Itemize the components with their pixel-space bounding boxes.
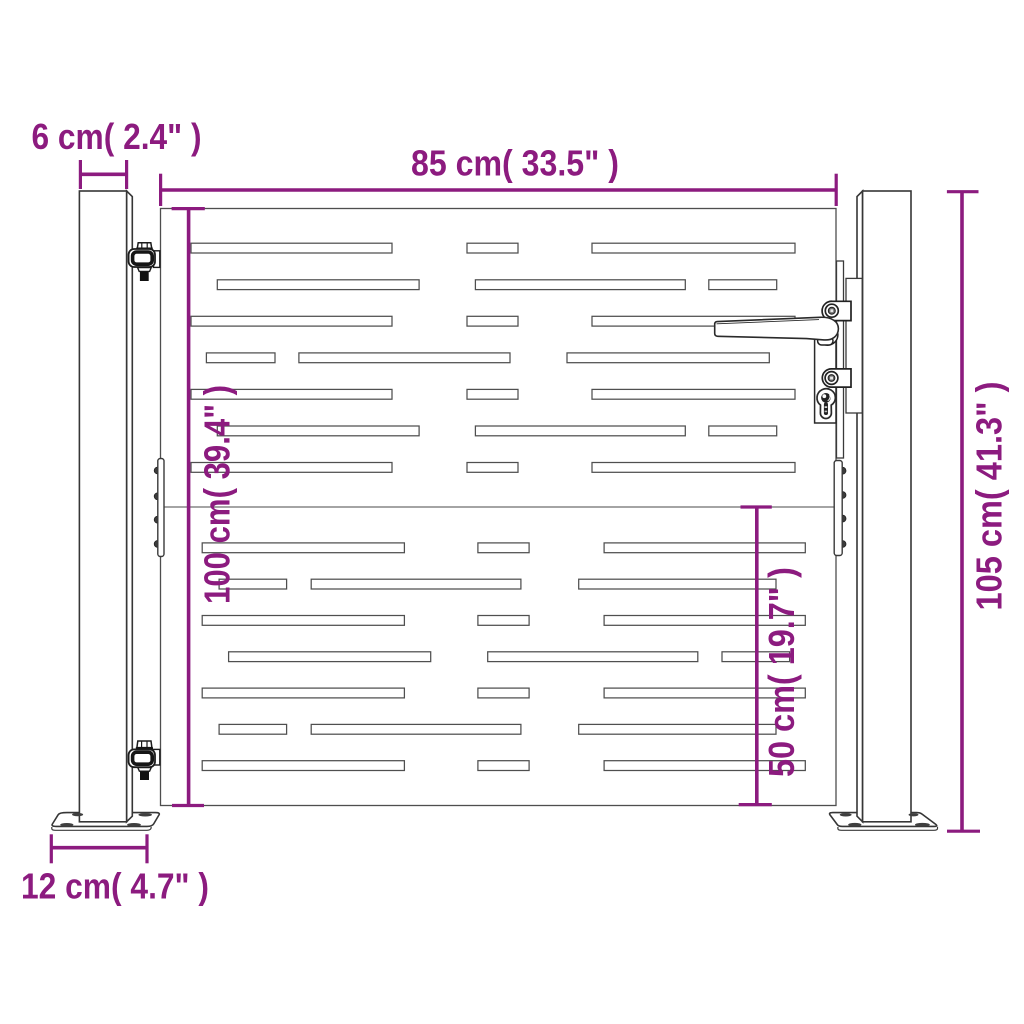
svg-text:100 cm( 39.4" ): 100 cm( 39.4" ) (197, 385, 238, 604)
svg-text:85 cm( 33.5" ): 85 cm( 33.5" ) (411, 143, 619, 184)
svg-text:105 cm( 41.3" ): 105 cm( 41.3" ) (968, 382, 1009, 611)
svg-text:6 cm( 2.4" ): 6 cm( 2.4" ) (32, 116, 202, 157)
svg-text:12 cm( 4.7" ): 12 cm( 4.7" ) (21, 866, 209, 907)
svg-text:50 cm( 19.7" ): 50 cm( 19.7" ) (761, 567, 802, 777)
